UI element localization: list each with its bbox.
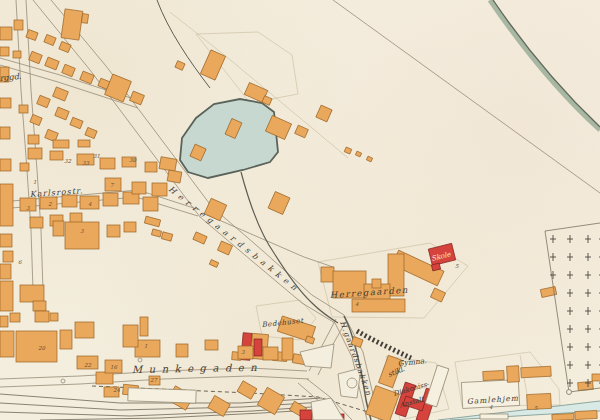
building [507,366,520,383]
road-edge-line [203,213,333,267]
building-number: 3 [26,205,30,211]
building [100,158,115,169]
building [37,95,51,107]
building [10,313,20,322]
building [19,105,28,113]
grave-cross-icon [567,235,573,243]
grave-cross-icon [567,271,573,279]
cemetery-boundary [545,223,600,231]
building [430,288,445,302]
building [70,117,83,129]
road-edge-line [333,0,600,193]
building-number: 30 [129,157,136,163]
building [144,216,160,227]
cemetery [545,223,600,395]
building [237,381,257,399]
building [161,232,172,241]
stream-line [157,0,210,88]
grave-cross-icon [585,271,591,279]
junction-island [311,398,344,420]
building [20,285,44,302]
building [70,213,82,223]
building [124,222,136,232]
building [62,64,76,76]
building-number: 31 [93,153,100,159]
grave-cross-icon [567,307,573,315]
building [316,105,332,122]
building [483,370,504,380]
pond [180,99,278,178]
grave-cross-icon [585,253,591,261]
building-number: 22 [84,362,91,368]
building [75,322,94,338]
label-street-partial: rggd. [0,72,22,83]
building [28,135,39,144]
building [355,151,361,157]
building [176,344,188,357]
building [20,163,29,171]
building [30,114,42,125]
building [0,184,13,226]
building [521,366,551,378]
building-number: 5 [455,263,459,269]
map-image: 1324731303233632022161327245445 Karlsros… [0,0,600,420]
building-number: 20 [38,345,45,351]
grave-cross-icon [550,235,556,243]
building [130,91,145,105]
building-number: 1 [33,179,37,185]
building [60,330,72,349]
building-number: 1 [144,343,148,349]
building [151,229,161,237]
building-number: 24 [113,387,120,393]
building [575,410,597,419]
building [3,251,13,262]
building [28,148,42,159]
building [159,157,177,172]
grave-cross-icon [585,307,591,315]
building [14,20,23,30]
grave-cross-icon [585,325,591,333]
building [35,311,49,322]
building-number: 3 [80,228,84,234]
map-canvas[interactable]: 1324731303233632022161327245445 Karlsros… [0,0,600,420]
grave-cross-icon [585,235,591,243]
map-symbol-circle [138,358,142,362]
building [282,338,293,360]
building [143,197,158,211]
building [305,336,314,344]
building [78,140,90,147]
road-edge-line [16,0,33,290]
building [193,232,207,244]
grave-cross-icon [585,289,591,297]
building [205,340,218,350]
building-number: 16 [110,364,117,370]
building-red [300,410,312,420]
building [0,316,8,327]
building [53,140,69,148]
building [59,41,71,52]
grave-cross-icon [567,325,573,333]
building [0,281,13,311]
building-number: 3 [241,349,245,355]
building-number: 4 [88,201,92,207]
building [55,107,69,120]
building [45,57,59,70]
building [107,225,120,237]
building [135,340,160,357]
road-edge-line [26,0,43,290]
building [33,301,46,311]
building [0,47,9,56]
building [321,267,334,282]
curved-road-line [493,0,600,127]
building [344,147,352,154]
building [81,14,88,24]
building [592,374,600,381]
building [13,51,21,58]
building [50,313,58,321]
building [30,217,43,228]
grave-cross-icon [567,253,573,261]
grave-cross-icon [567,361,573,369]
building-number: 4 [489,404,493,410]
building [50,151,63,160]
building [0,98,11,108]
building [105,74,132,102]
building [65,222,99,249]
building-number: 32 [64,158,71,164]
building [26,30,38,41]
building [527,393,552,409]
building [123,325,138,347]
building [209,260,218,268]
grave-cross-icon [585,361,591,369]
building [0,264,11,279]
building-number: 4 [355,301,359,307]
building [61,9,83,40]
building [152,183,167,196]
building [167,170,182,183]
building [62,195,77,207]
building [295,125,309,138]
building [145,162,157,172]
building [96,372,113,384]
stream-line [241,172,338,323]
label-street-munkegaden: Munkegaden [132,362,263,376]
junction-island [300,344,334,368]
building [85,127,97,138]
building [53,87,69,101]
building-number: 2 [48,201,52,207]
building [268,192,290,215]
building [200,50,225,80]
grave-cross-icon [567,289,573,297]
building [140,317,148,336]
map-symbol-circle [61,379,65,383]
building-outline [128,388,196,403]
grave-cross-icon [550,253,556,261]
building-outline [480,414,508,419]
cemetery-corner-marker [567,390,572,395]
building [552,413,574,420]
building-number: 6 [18,259,22,265]
grave-cross-icon [567,343,573,351]
building [29,51,43,63]
building [16,331,57,362]
building [352,299,405,312]
steps-hatched-path [357,331,411,358]
building [132,182,146,194]
building-number: 33 [82,160,89,166]
grave-cross-icon [585,343,591,351]
building [0,234,12,247]
building [208,395,231,416]
building [53,221,64,236]
building [0,159,11,171]
building [175,61,185,71]
building-red [254,339,262,356]
building [366,156,372,162]
junction-circle [347,378,357,388]
building-number: 5 [534,405,538,411]
building [44,34,56,45]
building [263,347,278,360]
building [0,27,12,40]
building [0,331,14,357]
building [103,193,118,206]
building [0,127,10,139]
